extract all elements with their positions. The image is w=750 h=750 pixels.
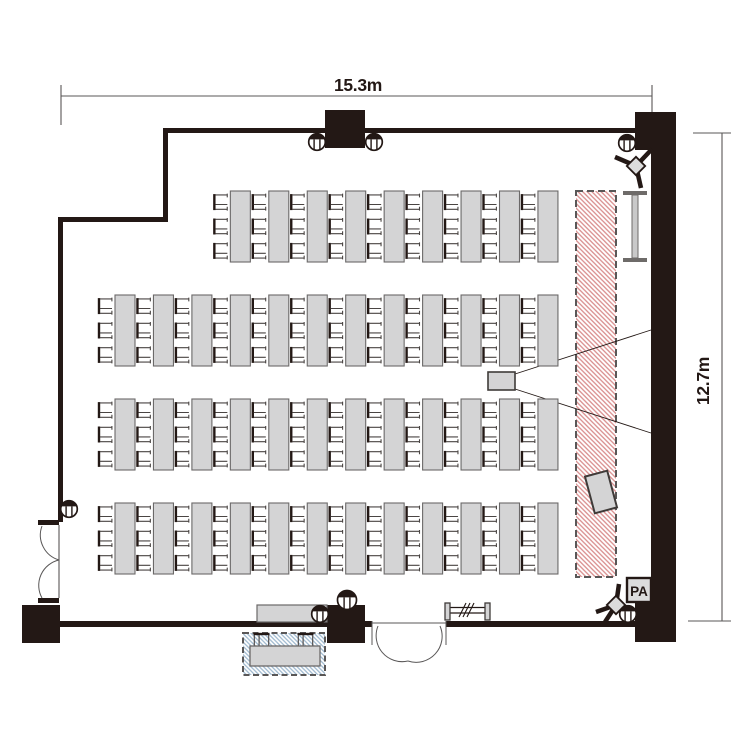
desk-unit bbox=[214, 295, 250, 366]
chair bbox=[291, 346, 304, 363]
desk-unit bbox=[330, 503, 366, 574]
reception-desk bbox=[250, 646, 320, 666]
seating-row-3 bbox=[99, 399, 558, 470]
chair bbox=[522, 242, 535, 259]
chair bbox=[253, 346, 266, 363]
desk-unit bbox=[214, 503, 250, 574]
door-swing-arc bbox=[40, 526, 59, 560]
chair bbox=[445, 506, 458, 523]
chair bbox=[330, 194, 343, 211]
chair bbox=[176, 322, 189, 339]
desk-unit bbox=[407, 295, 443, 366]
chair bbox=[176, 346, 189, 363]
desk-unit bbox=[330, 295, 366, 366]
seating-row-1 bbox=[214, 191, 558, 262]
desk bbox=[423, 503, 443, 574]
chair bbox=[368, 554, 381, 571]
chair bbox=[99, 450, 112, 467]
desk bbox=[423, 295, 443, 366]
chair bbox=[522, 426, 535, 443]
chair bbox=[99, 530, 112, 547]
desk bbox=[384, 503, 404, 574]
chair bbox=[291, 554, 304, 571]
chair bbox=[253, 194, 266, 211]
projection-screen bbox=[576, 191, 616, 577]
chair bbox=[176, 530, 189, 547]
desk bbox=[269, 295, 289, 366]
desk bbox=[192, 503, 212, 574]
desk-unit bbox=[407, 399, 443, 470]
chair bbox=[99, 506, 112, 523]
reception-area bbox=[243, 633, 325, 675]
whiteboard bbox=[623, 191, 647, 262]
desk bbox=[346, 295, 366, 366]
chair bbox=[330, 322, 343, 339]
chair bbox=[445, 426, 458, 443]
chair bbox=[484, 194, 497, 211]
outlet-symbol bbox=[338, 591, 357, 610]
chair bbox=[368, 194, 381, 211]
chair bbox=[214, 346, 227, 363]
chair bbox=[137, 298, 150, 315]
desk-unit bbox=[253, 503, 289, 574]
desk bbox=[230, 399, 250, 470]
desk-unit bbox=[253, 295, 289, 366]
chair bbox=[99, 402, 112, 419]
desk bbox=[423, 191, 443, 262]
desk-unit bbox=[484, 503, 520, 574]
wall-segment bbox=[163, 128, 655, 133]
chair bbox=[445, 298, 458, 315]
chair bbox=[176, 402, 189, 419]
desk-unit bbox=[368, 399, 404, 470]
desk bbox=[269, 399, 289, 470]
desk bbox=[307, 399, 327, 470]
chair bbox=[253, 402, 266, 419]
chair bbox=[330, 554, 343, 571]
chair bbox=[253, 450, 266, 467]
desk-unit bbox=[99, 399, 135, 470]
floor-plan: 15.3m 12.7m PA bbox=[0, 0, 750, 750]
chair bbox=[445, 346, 458, 363]
desk-unit bbox=[368, 295, 404, 366]
column bbox=[635, 112, 676, 150]
desk bbox=[538, 399, 558, 470]
chair bbox=[137, 402, 150, 419]
desk-unit bbox=[445, 399, 481, 470]
chair bbox=[368, 450, 381, 467]
chair bbox=[214, 322, 227, 339]
desk-unit bbox=[330, 191, 366, 262]
desk-unit bbox=[522, 295, 558, 366]
chair bbox=[368, 218, 381, 235]
chair bbox=[330, 450, 343, 467]
chair bbox=[484, 242, 497, 259]
desk bbox=[115, 503, 135, 574]
desk-unit bbox=[522, 191, 558, 262]
chair bbox=[291, 402, 304, 419]
outlet-symbol bbox=[309, 134, 326, 151]
chair bbox=[137, 506, 150, 523]
chair bbox=[176, 450, 189, 467]
desk bbox=[269, 191, 289, 262]
desk-unit bbox=[253, 399, 289, 470]
chair bbox=[445, 402, 458, 419]
desk bbox=[269, 503, 289, 574]
desk-unit bbox=[330, 399, 366, 470]
desk-unit bbox=[445, 191, 481, 262]
desk bbox=[346, 399, 366, 470]
desk bbox=[192, 295, 212, 366]
outlet-symbol bbox=[366, 134, 383, 151]
desk-unit bbox=[99, 503, 135, 574]
desk bbox=[538, 503, 558, 574]
desk bbox=[500, 295, 520, 366]
chair bbox=[330, 346, 343, 363]
chair bbox=[522, 194, 535, 211]
chair bbox=[176, 506, 189, 523]
chair bbox=[445, 194, 458, 211]
desk bbox=[461, 191, 481, 262]
desk bbox=[500, 191, 520, 262]
chair bbox=[137, 554, 150, 571]
chair bbox=[484, 506, 497, 523]
desk-unit bbox=[291, 295, 327, 366]
chair bbox=[330, 506, 343, 523]
desk bbox=[307, 191, 327, 262]
chair bbox=[407, 426, 420, 443]
chair bbox=[253, 242, 266, 259]
desk-unit bbox=[368, 503, 404, 574]
desk-unit bbox=[214, 399, 250, 470]
chair bbox=[330, 402, 343, 419]
chair bbox=[214, 402, 227, 419]
desk-unit bbox=[176, 399, 212, 470]
chair bbox=[407, 298, 420, 315]
desk bbox=[153, 503, 173, 574]
chair bbox=[176, 554, 189, 571]
chair bbox=[291, 298, 304, 315]
desk bbox=[384, 191, 404, 262]
chair bbox=[407, 450, 420, 467]
chair bbox=[407, 506, 420, 523]
chair bbox=[484, 450, 497, 467]
chair bbox=[291, 322, 304, 339]
wall-segment bbox=[58, 217, 63, 522]
desk-unit bbox=[253, 191, 289, 262]
desk-unit bbox=[484, 399, 520, 470]
chair bbox=[484, 554, 497, 571]
desk bbox=[307, 295, 327, 366]
chair bbox=[407, 242, 420, 259]
desk bbox=[538, 191, 558, 262]
chair bbox=[99, 298, 112, 315]
desk bbox=[461, 295, 481, 366]
desk bbox=[230, 295, 250, 366]
chair bbox=[522, 450, 535, 467]
chair bbox=[330, 426, 343, 443]
chair bbox=[368, 506, 381, 523]
chair bbox=[291, 506, 304, 523]
chair bbox=[445, 322, 458, 339]
column bbox=[327, 605, 365, 643]
chair bbox=[291, 426, 304, 443]
chair bbox=[291, 530, 304, 547]
chair bbox=[291, 242, 304, 259]
desk bbox=[384, 295, 404, 366]
chair bbox=[214, 554, 227, 571]
desk-unit bbox=[407, 503, 443, 574]
chair bbox=[291, 218, 304, 235]
desk-unit bbox=[484, 295, 520, 366]
desk bbox=[461, 503, 481, 574]
chair bbox=[368, 402, 381, 419]
desk-unit bbox=[137, 503, 173, 574]
chair bbox=[330, 218, 343, 235]
chair bbox=[522, 554, 535, 571]
desk bbox=[192, 399, 212, 470]
desk-unit bbox=[522, 399, 558, 470]
desk-unit bbox=[99, 295, 135, 366]
chair bbox=[522, 506, 535, 523]
height-dimension-label: 12.7m bbox=[693, 357, 713, 405]
chair bbox=[484, 402, 497, 419]
chair bbox=[330, 298, 343, 315]
desk-unit bbox=[484, 191, 520, 262]
chair bbox=[137, 426, 150, 443]
desk-unit bbox=[445, 503, 481, 574]
outlet-symbol bbox=[619, 135, 636, 152]
desk-unit bbox=[176, 295, 212, 366]
chair bbox=[484, 530, 497, 547]
chair bbox=[445, 554, 458, 571]
chair bbox=[214, 298, 227, 315]
chair bbox=[484, 298, 497, 315]
chair bbox=[137, 346, 150, 363]
chair bbox=[291, 194, 304, 211]
chair bbox=[407, 322, 420, 339]
projector bbox=[488, 372, 515, 390]
chair bbox=[484, 218, 497, 235]
seating-row-4 bbox=[99, 503, 558, 574]
chair bbox=[522, 402, 535, 419]
column bbox=[22, 605, 60, 643]
desk-unit bbox=[137, 399, 173, 470]
chair bbox=[445, 530, 458, 547]
chair bbox=[368, 298, 381, 315]
double-door-left bbox=[39, 525, 59, 598]
desk bbox=[115, 295, 135, 366]
speaker-stand-icon bbox=[615, 149, 652, 188]
chair bbox=[253, 298, 266, 315]
column bbox=[325, 110, 365, 148]
desk bbox=[500, 503, 520, 574]
chair bbox=[522, 530, 535, 547]
chair bbox=[407, 402, 420, 419]
wall-segment bbox=[446, 621, 652, 627]
chair bbox=[368, 530, 381, 547]
chair bbox=[330, 530, 343, 547]
chair bbox=[253, 506, 266, 523]
desk bbox=[153, 295, 173, 366]
chair bbox=[137, 530, 150, 547]
chair bbox=[522, 322, 535, 339]
chair bbox=[99, 426, 112, 443]
chair bbox=[407, 554, 420, 571]
chair bbox=[484, 346, 497, 363]
outlet-symbol bbox=[312, 606, 329, 623]
chair bbox=[253, 530, 266, 547]
chair bbox=[99, 346, 112, 363]
seating-row-2 bbox=[99, 295, 558, 366]
desk-unit bbox=[291, 191, 327, 262]
desk-unit bbox=[445, 295, 481, 366]
wall-segment bbox=[651, 112, 676, 642]
pa-label: PA bbox=[630, 584, 648, 599]
chair bbox=[214, 506, 227, 523]
door-swing-arc bbox=[376, 626, 408, 662]
chair bbox=[176, 298, 189, 315]
chair bbox=[484, 426, 497, 443]
chair bbox=[137, 450, 150, 467]
desk bbox=[230, 191, 250, 262]
chair bbox=[214, 242, 227, 259]
desk bbox=[346, 191, 366, 262]
desk bbox=[538, 295, 558, 366]
desk-unit bbox=[368, 191, 404, 262]
chair bbox=[484, 322, 497, 339]
coat-rack bbox=[445, 603, 490, 620]
door-jamb bbox=[38, 520, 59, 525]
chair bbox=[368, 346, 381, 363]
desk bbox=[346, 503, 366, 574]
chair bbox=[214, 218, 227, 235]
chair bbox=[522, 218, 535, 235]
chair bbox=[176, 426, 189, 443]
door-jamb bbox=[38, 598, 59, 603]
outlet-symbol bbox=[61, 501, 78, 518]
chair bbox=[445, 218, 458, 235]
floor-plan-canvas: 15.3m 12.7m PA bbox=[0, 0, 750, 750]
outlet-symbol bbox=[620, 606, 637, 623]
chair bbox=[253, 218, 266, 235]
chair bbox=[368, 322, 381, 339]
desk-unit bbox=[176, 503, 212, 574]
chair bbox=[368, 242, 381, 259]
desk bbox=[230, 503, 250, 574]
chair bbox=[253, 426, 266, 443]
chair bbox=[407, 530, 420, 547]
chair bbox=[522, 346, 535, 363]
door-swing-arc bbox=[408, 626, 442, 662]
chair bbox=[214, 450, 227, 467]
wall-segment bbox=[163, 128, 168, 222]
column bbox=[635, 603, 676, 642]
desk bbox=[500, 399, 520, 470]
chair bbox=[214, 426, 227, 443]
desk bbox=[307, 503, 327, 574]
chair bbox=[445, 450, 458, 467]
chair bbox=[99, 554, 112, 571]
desk bbox=[384, 399, 404, 470]
desk-unit bbox=[291, 399, 327, 470]
door-swing-arc bbox=[39, 560, 59, 598]
desk bbox=[423, 399, 443, 470]
desk-unit bbox=[407, 191, 443, 262]
desk-unit bbox=[137, 295, 173, 366]
chair bbox=[407, 346, 420, 363]
chair bbox=[99, 322, 112, 339]
wall-segment bbox=[58, 217, 168, 222]
chair bbox=[522, 298, 535, 315]
desk-unit bbox=[214, 191, 250, 262]
desk bbox=[115, 399, 135, 470]
double-door-bottom bbox=[372, 621, 446, 662]
desk bbox=[461, 399, 481, 470]
desk-unit bbox=[522, 503, 558, 574]
chair bbox=[407, 218, 420, 235]
chair bbox=[253, 322, 266, 339]
chair bbox=[330, 242, 343, 259]
chair bbox=[214, 194, 227, 211]
chair bbox=[214, 530, 227, 547]
desk bbox=[153, 399, 173, 470]
chair bbox=[445, 242, 458, 259]
desk-unit bbox=[291, 503, 327, 574]
width-dimension-label: 15.3m bbox=[334, 75, 382, 95]
chair bbox=[137, 322, 150, 339]
chair bbox=[407, 194, 420, 211]
chair bbox=[291, 450, 304, 467]
chair bbox=[253, 554, 266, 571]
chair bbox=[368, 426, 381, 443]
